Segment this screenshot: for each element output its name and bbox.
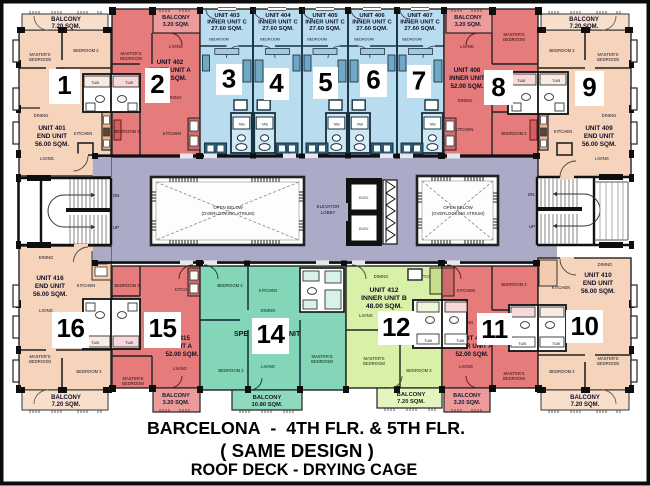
svg-text:BEDROOM: BEDROOM (260, 38, 280, 42)
svg-text:UNIT 403: UNIT 403 (214, 13, 240, 19)
svg-text:LIVING: LIVING (40, 156, 54, 161)
svg-text:5: 5 (318, 67, 332, 97)
svg-text:11: 11 (481, 314, 508, 344)
svg-text:TAB: TAB (356, 123, 363, 127)
svg-text:INNER UNIT C: INNER UNIT C (400, 20, 440, 26)
svg-text:BALCONY: BALCONY (570, 395, 600, 401)
svg-text:UNIT 412: UNIT 412 (369, 287, 398, 294)
svg-text:15: 15 (149, 313, 177, 343)
svg-text:56.00 SQM.: 56.00 SQM. (35, 141, 69, 148)
svg-text:1: 1 (57, 70, 71, 100)
svg-text:BALCONY: BALCONY (397, 392, 426, 398)
svg-text:LIVING: LIVING (459, 364, 473, 369)
svg-text:DINING: DINING (374, 274, 389, 279)
svg-text:TUB: TUB (125, 80, 133, 85)
svg-text:LIVING: LIVING (595, 156, 609, 161)
svg-text:BEDROOM 2: BEDROOM 2 (549, 369, 575, 374)
svg-text:END UNIT: END UNIT (584, 133, 614, 140)
svg-text:UNIT 409: UNIT 409 (585, 125, 613, 132)
svg-text:KITCHEN: KITCHEN (457, 288, 475, 293)
svg-text:TAB: TAB (429, 123, 436, 127)
svg-text:TUB: TUB (518, 341, 526, 346)
svg-text:BEDROOM: BEDROOM (597, 361, 619, 366)
svg-text:TUB: TUB (552, 78, 560, 83)
svg-text:3.20 SQM.: 3.20 SQM. (454, 400, 481, 406)
svg-text:DINING: DINING (598, 262, 613, 267)
svg-text:DINING: DINING (602, 113, 617, 118)
svg-text:LIVING: LIVING (39, 308, 53, 313)
svg-text:27.60 SQM.: 27.60 SQM. (262, 26, 294, 32)
svg-text:INNER UNIT C: INNER UNIT C (258, 20, 298, 26)
svg-text:UNIT 404: UNIT 404 (265, 13, 291, 19)
svg-text:BEDROOM: BEDROOM (402, 38, 422, 42)
svg-text:OPEN BELOW: OPEN BELOW (213, 205, 243, 210)
svg-text:BEDROOM: BEDROOM (122, 381, 144, 386)
svg-text:UNIT 401: UNIT 401 (38, 125, 66, 132)
svg-text:BEDROOM 2: BEDROOM 2 (549, 48, 575, 53)
svg-text:KITCHEN: KITCHEN (77, 283, 95, 288)
svg-text:BEDROOM 2: BEDROOM 2 (218, 368, 244, 373)
svg-text:56.00 SQM.: 56.00 SQM. (581, 288, 615, 295)
svg-text:BEDROOM 3: BEDROOM 3 (114, 129, 140, 134)
svg-text:BEDROOM: BEDROOM (503, 37, 525, 42)
svg-text:8: 8 (491, 72, 505, 102)
svg-text:BEDROOM: BEDROOM (311, 359, 333, 364)
svg-text:52.00 SQM.: 52.00 SQM. (455, 351, 488, 358)
svg-text:ELEVATOR: ELEVATOR (317, 204, 340, 209)
svg-text:BEDROOM 3: BEDROOM 3 (217, 283, 243, 288)
svg-text:UP: UP (113, 225, 119, 230)
svg-text:SPE: SPE (234, 331, 248, 338)
svg-text:BEDROOM 2: BEDROOM 2 (76, 369, 102, 374)
svg-text:INNER UNIT: INNER UNIT (449, 75, 485, 82)
svg-text:TUB: TUB (424, 338, 432, 343)
svg-text:DINING: DINING (39, 255, 54, 260)
svg-text:UNIT 405: UNIT 405 (312, 13, 338, 19)
svg-text:BALCONY: BALCONY (253, 395, 282, 401)
svg-text:LIVING: LIVING (261, 364, 275, 369)
svg-text:NIT: NIT (289, 331, 301, 338)
svg-text:BEDROOM 2: BEDROOM 2 (406, 368, 432, 373)
svg-text:UNIT 408: UNIT 408 (454, 67, 481, 74)
svg-text:LIVING: LIVING (169, 44, 183, 49)
svg-text:TUB: TUB (91, 80, 99, 85)
svg-text:BEDROOM: BEDROOM (29, 359, 51, 364)
svg-text:DINING: DINING (261, 308, 276, 313)
svg-text:4: 4 (269, 68, 284, 98)
svg-text:48.00 SQM.: 48.00 SQM. (366, 303, 402, 310)
svg-text:TAB: TAB (261, 123, 268, 127)
svg-text:ELEV.: ELEV. (359, 227, 369, 231)
svg-text:BEDROOM 2: BEDROOM 2 (73, 48, 99, 53)
svg-text:BALCONY: BALCONY (51, 395, 81, 401)
svg-text:ELEV.: ELEV. (359, 196, 369, 200)
svg-text:16: 16 (57, 313, 85, 343)
svg-text:7: 7 (412, 66, 426, 96)
svg-text:BEDROOM: BEDROOM (503, 376, 525, 381)
svg-text:TUB: TUB (456, 338, 464, 343)
svg-text:27.60 SQM.: 27.60 SQM. (356, 26, 388, 32)
svg-text:(OVERLOOKING ATRIUM): (OVERLOOKING ATRIUM) (432, 211, 485, 216)
svg-text:TUB: TUB (517, 78, 525, 83)
svg-text:9: 9 (582, 72, 596, 102)
svg-text:INNER UNIT C: INNER UNIT C (352, 20, 392, 26)
svg-text:LIVING: LIVING (173, 366, 187, 371)
svg-text:27.60 SQM.: 27.60 SQM. (309, 26, 341, 32)
svg-text:UNIT 406: UNIT 406 (359, 13, 385, 19)
svg-text:TUB: TUB (125, 340, 133, 345)
svg-text:LOBBY: LOBBY (321, 210, 336, 215)
svg-text:BEDROOM 3: BEDROOM 3 (114, 283, 140, 288)
svg-text:DINING: DINING (458, 98, 473, 103)
svg-text:DN.: DN. (528, 192, 536, 197)
svg-text:INNER UNIT C: INNER UNIT C (305, 20, 345, 26)
svg-text:10.80 SQM.: 10.80 SQM. (252, 402, 283, 408)
svg-text:BALCONY: BALCONY (454, 15, 482, 21)
svg-text:BALCONY: BALCONY (51, 17, 81, 23)
svg-text:UNIT 407: UNIT 407 (407, 13, 433, 19)
svg-text:END UNIT: END UNIT (37, 133, 67, 140)
svg-text:BALCONY: BALCONY (453, 393, 481, 399)
svg-text:TUB: TUB (91, 340, 99, 345)
svg-text:BEDROOM: BEDROOM (307, 38, 327, 42)
svg-text:3.20 SQM.: 3.20 SQM. (163, 400, 190, 406)
svg-text:KITCHEN: KITCHEN (455, 127, 473, 132)
svg-text:UNIT 416: UNIT 416 (36, 275, 64, 282)
svg-text:BALCONY: BALCONY (162, 393, 190, 399)
svg-text:6: 6 (366, 65, 380, 95)
svg-text:BALCONY: BALCONY (162, 15, 190, 21)
svg-text:BEDROOM 3: BEDROOM 3 (501, 282, 527, 287)
svg-text:BEDROOM: BEDROOM (209, 38, 229, 42)
svg-text:BALCONY: BALCONY (569, 17, 599, 23)
svg-text:56.00 SQM.: 56.00 SQM. (33, 291, 67, 298)
svg-text:52.00 SQM.: 52.00 SQM. (165, 351, 198, 358)
svg-text:KITCHEN: KITCHEN (554, 129, 572, 134)
svg-text:ROOF DECK - DRYING CAGE: ROOF DECK - DRYING CAGE (191, 461, 418, 479)
svg-text:OPEN BELOW: OPEN BELOW (443, 205, 473, 210)
svg-text:52.00 SQM.: 52.00 SQM. (450, 83, 483, 90)
svg-text:7.20 SQM.: 7.20 SQM. (571, 402, 600, 408)
svg-text:BEDROOM: BEDROOM (354, 38, 374, 42)
svg-text:END UNIT: END UNIT (583, 280, 613, 287)
svg-text:BEDROOM 2: BEDROOM 2 (501, 131, 527, 136)
svg-text:3.20 SQM.: 3.20 SQM. (163, 22, 190, 28)
svg-text:12: 12 (382, 312, 410, 342)
svg-text:DINING: DINING (34, 113, 49, 118)
svg-text:END UNIT: END UNIT (35, 283, 65, 290)
svg-text:7.20 SQM.: 7.20 SQM. (52, 402, 81, 408)
svg-text:7.20 SQM.: 7.20 SQM. (397, 399, 425, 405)
svg-text:LIVING: LIVING (460, 44, 474, 49)
svg-text:3: 3 (222, 64, 236, 94)
svg-text:INNER UNIT C: INNER UNIT C (207, 20, 247, 26)
svg-text:UP: UP (529, 224, 535, 229)
svg-text:INNER UNIT B: INNER UNIT B (361, 295, 407, 302)
svg-text:TAB: TAB (238, 123, 245, 127)
svg-text:( SAME DESIGN ): ( SAME DESIGN ) (220, 440, 374, 461)
svg-text:27.60 SQM.: 27.60 SQM. (404, 26, 436, 32)
svg-text:BEDROOM: BEDROOM (363, 361, 385, 366)
svg-text:BARCELONA - 4TH FLR. & 5TH F: BARCELONA - 4TH FLR. & 5TH FLR. (147, 418, 465, 438)
svg-text:UNIT 402: UNIT 402 (157, 59, 184, 66)
svg-text:10: 10 (571, 311, 599, 341)
svg-text:56.00 SQM.: 56.00 SQM. (582, 141, 616, 148)
svg-text:BEDROOM: BEDROOM (597, 57, 619, 62)
svg-text:KITCHEN: KITCHEN (163, 131, 181, 136)
svg-text:DN.: DN. (113, 193, 121, 198)
svg-text:3.20 SQM.: 3.20 SQM. (455, 22, 482, 28)
svg-text:TAB: TAB (333, 123, 340, 127)
svg-text:BEDROOM: BEDROOM (120, 56, 142, 61)
svg-text:KITCHEN: KITCHEN (74, 131, 92, 136)
svg-text:BEDROOM: BEDROOM (29, 57, 51, 62)
svg-text:2: 2 (150, 69, 164, 99)
svg-text:14: 14 (257, 319, 286, 349)
svg-text:27.60 SQM.: 27.60 SQM. (211, 26, 243, 32)
svg-text:UNIT 410: UNIT 410 (584, 272, 612, 279)
svg-text:LIVING: LIVING (359, 313, 373, 318)
svg-text:(OVERLOOKING ATRIUM): (OVERLOOKING ATRIUM) (202, 211, 255, 216)
svg-text:KITCHEN: KITCHEN (259, 288, 277, 293)
svg-text:TUB: TUB (552, 341, 560, 346)
